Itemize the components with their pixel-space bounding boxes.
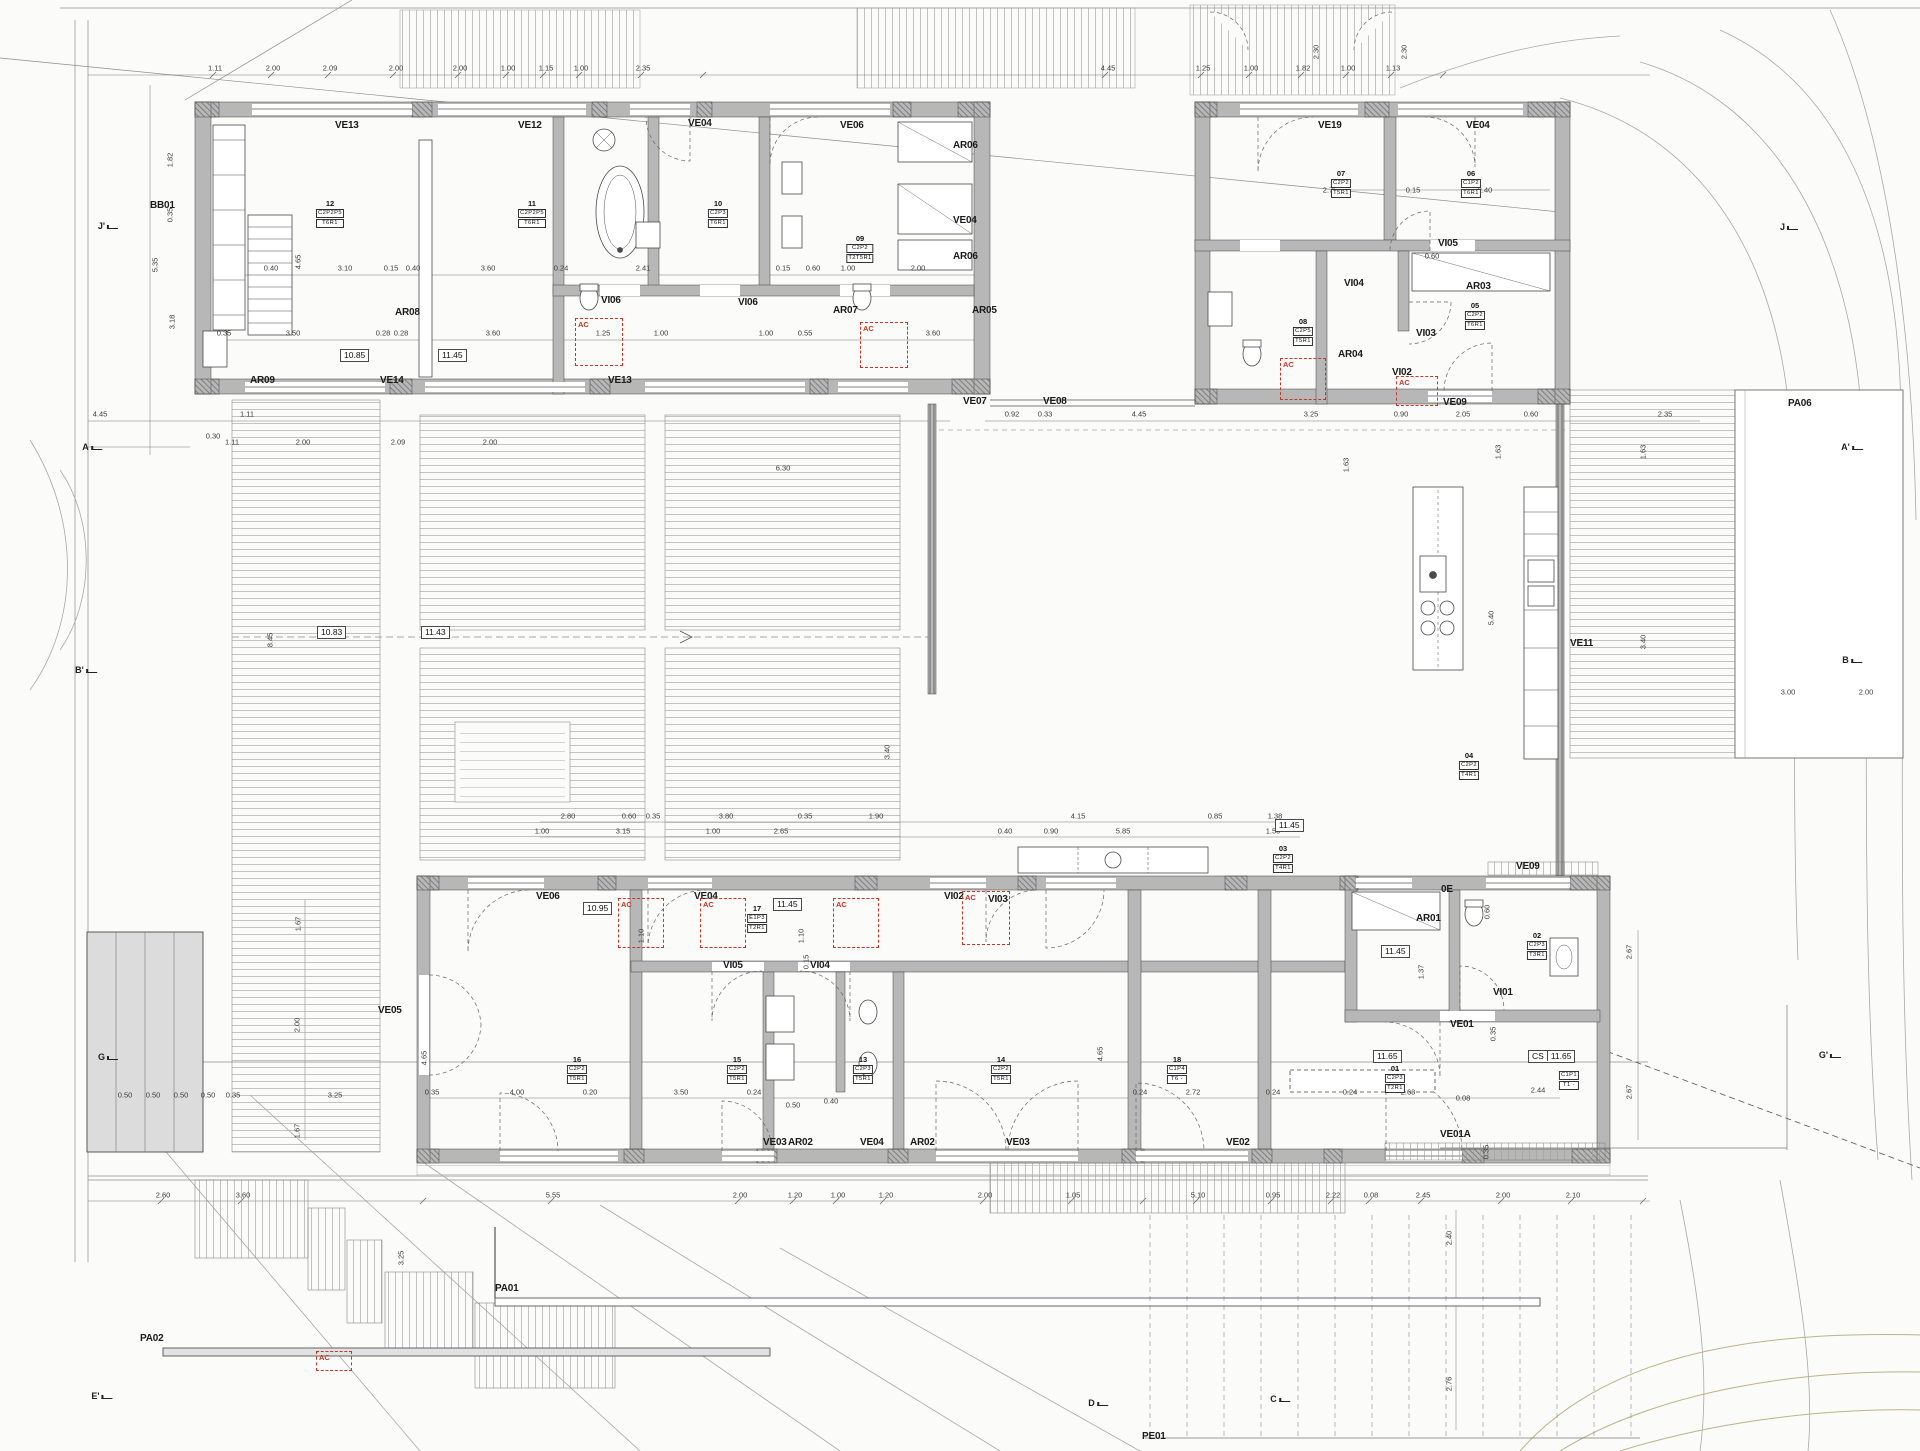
plan-label-pa06: PA06 (1788, 398, 1811, 409)
dimension-text: 0.50 (118, 1091, 133, 1100)
dimension-text: 1.15 (539, 64, 554, 73)
dimension-text: 1.67 (293, 1124, 302, 1139)
room-tag-l1: C2P2 (1459, 761, 1479, 770)
dimension-text: 0.15 (776, 264, 791, 273)
plan-label-ar06: AR06 (953, 140, 978, 151)
room-tag-l2: T2R1 (747, 924, 767, 933)
plan-label-ar04: AR04 (1338, 349, 1363, 360)
section-marker-g: G (98, 1052, 118, 1062)
room-tag-n: 15 (727, 1056, 747, 1064)
dimension-text: 2.00 (978, 1191, 993, 1200)
level-badge: 10.83 (317, 626, 346, 639)
level-value: 11.65 (1551, 1051, 1572, 1061)
plan-label-vi06: VI06 (738, 297, 758, 308)
plan-label-0e: 0E (1441, 884, 1453, 895)
plan-label-ar02: AR02 (910, 1137, 935, 1148)
dimension-text: 2.72 (1186, 1088, 1201, 1097)
room-tag-l2: T3R1 (1527, 951, 1547, 960)
dimension-text: 4.45 (1132, 410, 1147, 419)
plan-label-ve11: VE11 (1570, 638, 1593, 649)
ac-unit-label: AC (836, 900, 847, 909)
room-tag: 08C2P5T5R1 (1293, 318, 1313, 346)
plan-label-ar07: AR07 (833, 305, 858, 316)
dimension-text: 2.00 (1859, 688, 1874, 697)
dimension-text: 4.65 (1096, 1047, 1105, 1062)
dimension-text: 0.40 (264, 264, 279, 273)
room-tag: 12C2P2P5T6R1 (316, 200, 344, 228)
dimension-text: 1.20 (788, 1191, 803, 1200)
dimension-text: 2.00 (1496, 1191, 1511, 1200)
dimension-text: 3.60 (926, 329, 941, 338)
dimension-text: 1.05 (1066, 1191, 1081, 1200)
ac-unit-marker: AC (575, 318, 623, 366)
room-tag-n: 06 (1461, 170, 1481, 178)
room-tag: 13C2P3T5R1 (853, 1056, 873, 1084)
dimension-text: 1.82 (166, 153, 175, 168)
dimension-text: 0.35 (425, 1088, 440, 1097)
dimension-text: 3.40 (1639, 635, 1648, 650)
dimension-text: 0.24 (747, 1088, 762, 1097)
room-tag: 14C2P2T5R1 (991, 1056, 1011, 1084)
dimension-text: 0.35 (798, 812, 813, 821)
dimension-text: 2.00 (733, 1191, 748, 1200)
section-marker-ep: E' (91, 1391, 112, 1401)
room-tag-l1: C2P3 (853, 1065, 873, 1074)
plan-label-ve01a: VE01A (1440, 1129, 1471, 1140)
dimension-text: 3.60 (486, 329, 501, 338)
ac-unit-label: AC (1283, 360, 1294, 369)
plan-label-vi01: VI01 (1493, 987, 1513, 998)
dimension-text: 0.35 (1482, 1145, 1491, 1160)
plan-label-ve06: VE06 (536, 891, 560, 902)
dimension-text: 0.24 (554, 264, 569, 273)
room-tag-l1: C2P2P5 (518, 209, 546, 218)
dimension-text: 0.40 (824, 1097, 839, 1106)
dimension-text: 3.50 (286, 329, 301, 338)
dimension-text: 2.30 (1400, 45, 1409, 60)
dimension-text: 2.00 (293, 1018, 302, 1033)
dimension-text: 0.28 (376, 329, 391, 338)
dimension-text: 1.20 (879, 1191, 894, 1200)
room-tag-l1: C1P2 (1461, 179, 1481, 188)
plan-label-ve04: VE04 (1466, 120, 1490, 131)
dimension-text: 0.35 (166, 208, 175, 223)
level-value: 11.45 (1279, 820, 1300, 830)
room-tag: 03C2P2T4R1 (1273, 845, 1293, 873)
dimension-text: 2.67 (1625, 1085, 1634, 1100)
dimension-text: 2.35 (636, 64, 651, 73)
dimension-text: 1.00 (759, 329, 774, 338)
section-marker-a: A (82, 442, 102, 452)
dimension-text: 5.10 (1191, 1191, 1206, 1200)
plan-label-ve08: VE08 (1043, 396, 1067, 407)
dimension-text: 0.60 (1483, 905, 1492, 920)
room-tag: 16C2P2T5R1 (567, 1056, 587, 1084)
dimension-text: 0.15 (1406, 186, 1421, 195)
ac-unit-label: AC (863, 324, 874, 333)
section-marker-b: B (1842, 655, 1862, 665)
dimension-text: 0.50 (201, 1091, 216, 1100)
level-value: 10.85 (344, 350, 365, 360)
dimension-text: 0.85 (1208, 812, 1223, 821)
dimension-text: 2.44 (1531, 1086, 1546, 1095)
dimension-text: 0.90 (1044, 827, 1059, 836)
level-value: 10.83 (321, 627, 342, 637)
room-tag: 17E1P3T2R1 (747, 905, 767, 933)
plan-label-pe01: PE01 (1142, 1431, 1166, 1442)
room-tag-l2: T5R1 (991, 1075, 1011, 1084)
dimension-text: 5.55 (546, 1191, 561, 1200)
plan-label-ve03: VE03 (1006, 1137, 1030, 1148)
ac-unit-label: AC (965, 893, 976, 902)
dimension-text: 1.00 (1341, 64, 1356, 73)
room-tag-l1: C2P2 (846, 244, 873, 253)
plan-label-ve01: VE01 (1450, 1019, 1474, 1030)
room-tag-l1: C2P2 (567, 1065, 587, 1074)
room-tag: 07C2P2T5R1 (1331, 170, 1351, 198)
room-tag-l2: T4R1 (1273, 864, 1293, 873)
dimension-text: 0.50 (786, 1101, 801, 1110)
room-tag-l2: T5R1 (1293, 337, 1313, 346)
level-value: 11.45 (777, 899, 798, 909)
dimension-text: 1.00 (535, 827, 550, 836)
dimension-text: 0.35 (217, 329, 232, 338)
room-tag-l2: T5R1 (567, 1075, 587, 1084)
section-marker-d: D (1088, 1398, 1108, 1408)
dimension-text: 6.30 (776, 464, 791, 473)
plan-label-ve06: VE06 (840, 120, 864, 131)
dimension-text: 3.15 (616, 827, 631, 836)
dimension-text: 0.50 (146, 1091, 161, 1100)
plan-label-pa01: PA01 (495, 1283, 518, 1294)
dimension-text: 2.80 (561, 812, 576, 821)
room-tag-n: 05 (1465, 302, 1485, 310)
room-tag: 06C1P2T6R1 (1461, 170, 1481, 198)
dimension-text: 0.40 (998, 827, 1013, 836)
room-tag-n: 02 (1527, 932, 1547, 940)
section-marker-bp: B' (75, 665, 97, 675)
plan-label-ve05: VE05 (378, 1005, 402, 1016)
room-tag-n: 04 (1459, 752, 1479, 760)
dimension-text: 0.95 (1266, 1191, 1281, 1200)
room-tag-l1: C2P5 (1293, 327, 1313, 336)
dimension-text: 2.09 (391, 438, 406, 447)
dimension-text: 5.85 (1116, 827, 1131, 836)
room-tag-l2: T5R1 (853, 1075, 873, 1084)
dimension-text: 4.65 (420, 1051, 429, 1066)
room-tag-l2: T5R1 (727, 1075, 747, 1084)
plan-label-pa02: PA02 (140, 1333, 163, 1344)
dimension-text: 2.10 (1566, 1191, 1581, 1200)
dimension-text: 2.65 (774, 827, 789, 836)
room-tag-l1: C2P3 (1385, 1074, 1405, 1083)
dimension-text: 0.24 (1133, 1088, 1148, 1097)
dimension-text: 1.00 (501, 64, 516, 73)
dimension-text: 0.30 (206, 432, 221, 441)
ac-unit-marker: AC (860, 322, 908, 368)
dimension-text: 0.28 (394, 329, 409, 338)
dimension-text: 1.00 (1244, 64, 1259, 73)
plan-label-vi05: VI05 (723, 960, 743, 971)
room-tag-n: 11 (518, 200, 546, 208)
room-tag-n: 13 (853, 1056, 873, 1064)
dimension-text: 2.22 (1326, 1191, 1341, 1200)
room-tag-n: 16 (567, 1056, 587, 1064)
room-tag-l1: C1P1 (1559, 1071, 1579, 1080)
room-tag: 01C2P3T2R1 (1385, 1065, 1405, 1093)
ac-unit-marker: AC (833, 898, 879, 948)
dimension-text: 1.63 (1639, 445, 1648, 460)
dimension-text: 4.45 (1101, 64, 1116, 73)
level-badge: 11.45 (773, 898, 802, 911)
dimension-text: 3.25 (328, 1091, 343, 1100)
section-marker-jp: J' (98, 221, 118, 231)
dimension-text: 2.09 (323, 64, 338, 73)
section-marker-ap: A' (1841, 442, 1863, 452)
dimension-text: 0.15 (384, 264, 399, 273)
room-tag-n: 10 (708, 200, 728, 208)
level-prefix: CS (1532, 1051, 1548, 1061)
plan-label-vi04: VI04 (810, 960, 830, 971)
ac-unit-marker: AC (618, 898, 664, 948)
dimension-text: 1.00 (841, 264, 856, 273)
room-tag-n: 08 (1293, 318, 1313, 326)
dimension-text: 1.00 (574, 64, 589, 73)
room-tag-l2: T6R1 (518, 219, 546, 228)
dimension-text: 3.25 (1304, 410, 1319, 419)
section-marker-j: J (1780, 222, 1798, 232)
dimension-text: 1.00 (831, 1191, 846, 1200)
dimension-text: 3.25 (397, 1251, 406, 1266)
plan-label-ve09: VE09 (1443, 397, 1467, 408)
room-tag-l2: T6R1 (1461, 189, 1481, 198)
room-tag-l1: C2P3 (1527, 941, 1547, 950)
room-tag-l1: C2P3 (708, 209, 728, 218)
plan-label-vi04: VI04 (1344, 278, 1364, 289)
room-tag-l1: C2P2 (1331, 179, 1351, 188)
level-value: 11.45 (442, 350, 463, 360)
dimension-text: 2.60 (156, 1191, 171, 1200)
dimension-text: 0.50 (174, 1091, 189, 1100)
dimension-text: 3.40 (883, 745, 892, 760)
dimension-text: 1.37 (1417, 965, 1426, 980)
room-tag-l2: T5R1 (1331, 189, 1351, 198)
room-tag-l2: T6R1 (1465, 321, 1485, 330)
room-tag: C1P1T1 - (1559, 1070, 1579, 1090)
dimension-text: 1.11 (225, 438, 239, 447)
ac-unit-label: AC (703, 900, 714, 909)
plan-label-ve13: VE13 (335, 120, 359, 131)
dimension-text: 2.76 (1445, 1377, 1454, 1392)
plan-label-ar05: AR05 (972, 305, 997, 316)
dimension-text: 1.11 (208, 64, 222, 73)
ac-unit-label: AC (621, 900, 632, 909)
room-tag-l2: T6 - (1167, 1075, 1187, 1084)
plan-label-ve14: VE14 (380, 375, 404, 386)
dimension-text: 3.50 (674, 1088, 689, 1097)
ac-unit-label: AC (319, 1353, 330, 1362)
plan-label-ar01: AR01 (1416, 913, 1441, 924)
room-tag-l1: C2P2P5 (316, 209, 344, 218)
plan-label-ve04: VE04 (688, 118, 712, 129)
room-tag-l1: C2P2 (991, 1065, 1011, 1074)
section-marker-c: C (1270, 1394, 1290, 1404)
room-tag-l2: T4R1 (1459, 771, 1479, 780)
dimension-text: 0.35 (1489, 1027, 1498, 1042)
level-badge: 10.95 (583, 902, 612, 915)
floor-plan-sheet: VE13VE12VE04VE06AR06VE04AR06AR05AR08AR07… (0, 0, 1920, 1451)
dimension-text: 0.40 (406, 264, 421, 273)
room-tag: 04C2P2T4R1 (1459, 752, 1479, 780)
room-tag-l1: C1P4 (1167, 1065, 1187, 1074)
dimension-text: 1.00 (654, 329, 669, 338)
level-value: 10.95 (587, 903, 608, 913)
level-badge: 11.45 (438, 349, 467, 362)
room-tag-l2: T6R1 (708, 219, 728, 228)
room-tag-n: 12 (316, 200, 344, 208)
dimension-text: 0.20 (583, 1088, 598, 1097)
level-value: 11.43 (425, 627, 446, 637)
dimension-text: 0.08 (1364, 1191, 1379, 1200)
plan-label-ar02: AR02 (788, 1137, 813, 1148)
dimension-text: 1.90 (869, 812, 884, 821)
dimension-text: 2.00 (296, 438, 311, 447)
plan-label-ar08: AR08 (395, 307, 420, 318)
level-badge: 11.43 (421, 626, 450, 639)
room-tag-n: 03 (1273, 845, 1293, 853)
room-tag-l1: C2P2 (727, 1065, 747, 1074)
dimension-text: 3.00 (1781, 688, 1796, 697)
dimension-text: 4.45 (93, 410, 108, 419)
dimension-text: 0.33 (1038, 410, 1053, 419)
dimension-text: 0.24 (1266, 1088, 1281, 1097)
dimension-text: 2.67 (1625, 945, 1634, 960)
dimension-text: 1.13 (1386, 64, 1401, 73)
dimension-text: 2.35 (1658, 410, 1673, 419)
dimension-text: 2.00 (266, 64, 281, 73)
dimension-text: 3.60 (236, 1191, 251, 1200)
room-tag: 10C2P3T6R1 (708, 200, 728, 228)
level-value: 11.65 (1377, 1051, 1398, 1061)
level-badge: 11.45 (1275, 819, 1304, 832)
dimension-text: 0.15 (802, 955, 811, 970)
dimension-text: 2.00 (389, 64, 404, 73)
dimension-text: 2.45 (1416, 1191, 1431, 1200)
dimension-text: 2.05 (1456, 410, 1471, 419)
dimension-text: 2.00 (483, 438, 498, 447)
room-tag: 15C2P2T5R1 (727, 1056, 747, 1084)
room-tag: 11C2P2P5T6R1 (518, 200, 546, 228)
room-tag-l1: C2P2 (1465, 311, 1485, 320)
level-badge: CS11.65 (1528, 1050, 1575, 1063)
plan-label-ve02: VE02 (1226, 1137, 1250, 1148)
room-tag-l2: T2T5R1 (846, 254, 873, 263)
room-tag: 18C1P4T6 - (1167, 1056, 1187, 1084)
dimension-text: 5.35 (151, 258, 160, 273)
plan-label-vi05: VI05 (1438, 238, 1458, 249)
ac-unit-marker: AC (1280, 358, 1326, 400)
ac-unit-marker: AC (316, 1351, 352, 1371)
plan-annotations: VE13VE12VE04VE06AR06VE04AR06AR05AR08AR07… (0, 0, 1920, 1451)
plan-label-ve12: VE12 (518, 120, 542, 131)
dimension-text: 1.11 (240, 410, 254, 419)
dimension-text: 3.80 (719, 812, 734, 821)
dimension-text: 0.92 (1005, 410, 1020, 419)
dimension-text: 0.35 (646, 812, 661, 821)
room-tag: 05C2P2T6R1 (1465, 302, 1485, 330)
room-tag-n: 14 (991, 1056, 1011, 1064)
section-marker-gp: G' (1819, 1050, 1841, 1060)
dimension-text: 0.90 (1394, 410, 1409, 419)
plan-label-vi03: VI03 (1416, 328, 1436, 339)
plan-label-ve03: VE03 (763, 1137, 787, 1148)
dimension-text: 0.60 (1425, 252, 1440, 261)
dimension-text: 1.63 (1342, 458, 1351, 473)
room-tag-l2: T2R1 (1385, 1084, 1405, 1093)
dimension-text: 0.35 (226, 1091, 241, 1100)
dimension-text: 1.82 (1296, 64, 1311, 73)
ac-unit-marker: AC (700, 898, 746, 948)
dimension-text: 0.08 (1456, 1094, 1471, 1103)
room-tag-n: 17 (747, 905, 767, 913)
ac-unit-label: AC (1399, 378, 1410, 387)
dimension-text: 1.67 (294, 917, 303, 932)
plan-label-ve19: VE19 (1318, 120, 1342, 131)
plan-label-ve04: VE04 (953, 215, 977, 226)
dimension-text: 2.30 (1312, 45, 1321, 60)
plan-label-ve13: VE13 (608, 375, 632, 386)
room-tag-l1: E1P3 (747, 914, 767, 923)
dimension-text: 0.60 (806, 264, 821, 273)
room-tag-l2: T1 - (1559, 1081, 1579, 1090)
dimension-text: 2.40 (1445, 1231, 1454, 1246)
dimension-text: 0.60 (622, 812, 637, 821)
room-tag-n: 18 (1167, 1056, 1187, 1064)
dimension-text: 4.15 (1071, 812, 1086, 821)
ac-unit-marker: AC (1396, 376, 1438, 406)
level-badge: 10.85 (340, 349, 369, 362)
dimension-text: 0.55 (798, 329, 813, 338)
plan-label-ve07: VE07 (963, 396, 987, 407)
dimension-text: 4.65 (294, 255, 303, 270)
dimension-text: 1.00 (706, 827, 721, 836)
dimension-text: 0.24 (1343, 1088, 1358, 1097)
room-tag: 09C2P2T2T5R1 (846, 235, 873, 263)
dimension-text: 2.00 (453, 64, 468, 73)
plan-label-ve09: VE09 (1516, 861, 1540, 872)
room-tag-n: 07 (1331, 170, 1351, 178)
plan-label-ve04: VE04 (860, 1137, 884, 1148)
level-badge: 11.45 (1381, 945, 1410, 958)
plan-label-vi02: VI02 (944, 891, 964, 902)
room-tag: 02C2P3T3R1 (1527, 932, 1547, 960)
plan-label-ar03: AR03 (1466, 281, 1491, 292)
dimension-text: 0.60 (1524, 410, 1539, 419)
ac-unit-label: AC (578, 320, 589, 329)
dimension-text: 4.00 (510, 1088, 525, 1097)
room-tag-n: 09 (846, 235, 873, 243)
dimension-text: 3.60 (481, 264, 496, 273)
dimension-text: 3.10 (338, 264, 353, 273)
plan-label-ar09: AR09 (250, 375, 275, 386)
dimension-text: 1.63 (1494, 445, 1503, 460)
dimension-text: 1.10 (797, 929, 806, 944)
dimension-text: 8.45 (266, 633, 275, 648)
dimension-text: 3.18 (168, 315, 177, 330)
room-tag-l2: T6R1 (316, 219, 344, 228)
room-tag-l1: C2P2 (1273, 854, 1293, 863)
level-badge: 11.65 (1373, 1050, 1402, 1063)
